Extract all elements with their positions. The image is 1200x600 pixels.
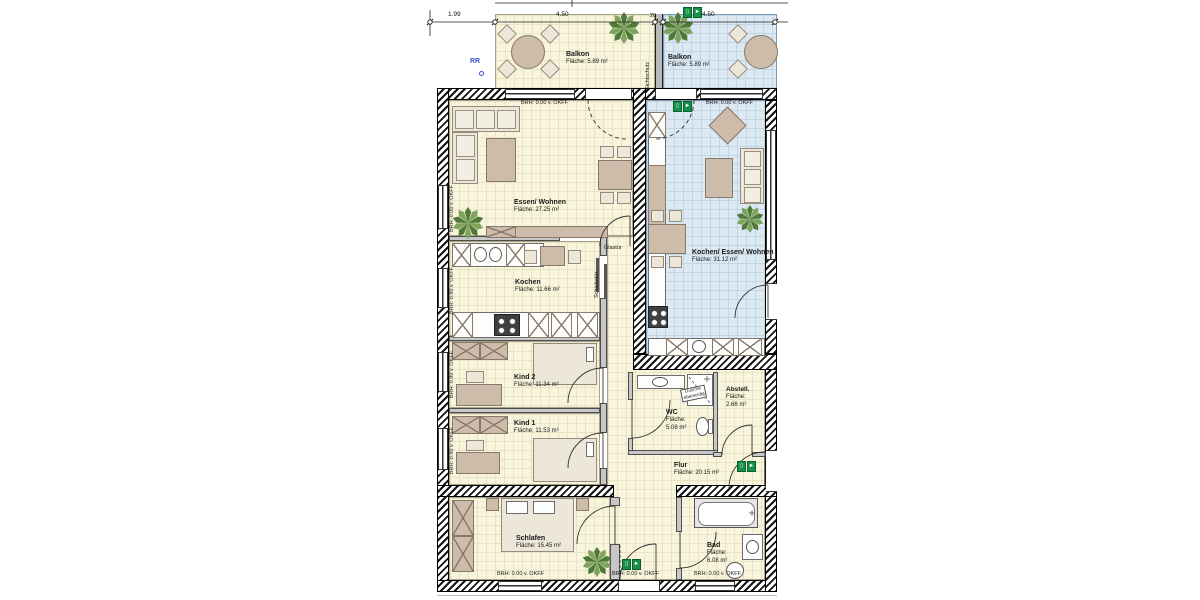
- sofa: [452, 106, 520, 132]
- dining-chair: [669, 210, 682, 222]
- dim-left: 1.99: [448, 11, 461, 19]
- wall-corridor: [600, 298, 607, 368]
- door-gap-right-living: [766, 283, 777, 320]
- balcony-door-gap-right: [655, 89, 697, 99]
- rr-marker: RR: [470, 57, 480, 66]
- kitchen-cabinet: [528, 312, 549, 338]
- balcony-door-gap-left: [585, 89, 632, 99]
- exit-sign-icon: ▯ ►: [622, 559, 641, 570]
- exit-sign-icon: ▯ ►: [683, 7, 702, 18]
- dining-chair: [669, 256, 682, 268]
- wall-corridor: [600, 403, 607, 433]
- sill-label: BRH: 0.00 v. OKFF: [706, 100, 753, 107]
- washbasin: [652, 377, 668, 387]
- bath-sink-basin: [746, 540, 759, 554]
- wardrobe-door: [452, 500, 474, 536]
- plant-icon: [736, 204, 764, 234]
- pillow: [533, 501, 555, 514]
- wall-corridor: [600, 468, 607, 485]
- kitchen-left-label: Kochen Fläche: 11.66 m²: [515, 278, 560, 295]
- stove: [648, 306, 668, 328]
- glass-door-label: Glastür: [604, 245, 622, 252]
- kitchen-cabinet: [506, 243, 525, 267]
- desk: [456, 384, 502, 406]
- bathtub: [694, 498, 758, 528]
- nightstand: [486, 498, 499, 511]
- dining-table: [648, 224, 686, 254]
- wall-band-wc: [633, 354, 777, 370]
- exit-sign-icon: ▯ ►: [737, 461, 756, 472]
- dim-gap: 20: [650, 13, 656, 20]
- wardrobe-door: [452, 342, 480, 360]
- wall-storage-bottom: [752, 452, 766, 457]
- dining-chair: [617, 146, 631, 158]
- wall-bath-left: [676, 497, 682, 532]
- wall-bedroom-right: [610, 497, 620, 506]
- window-living-left: [438, 185, 448, 229]
- dining-chair: [651, 210, 664, 222]
- window-right-living: [766, 130, 776, 260]
- sofa: [452, 132, 478, 184]
- coffee-table: [705, 158, 733, 198]
- kitchen-table: [540, 246, 565, 266]
- nightstand: [576, 498, 589, 511]
- sofa: [740, 148, 764, 204]
- storage-label: Abstell. Fläche: 2.66 m²: [726, 386, 749, 410]
- balcony-right-label: Balkon Fläche: 5.89 m²: [668, 53, 710, 70]
- dining-chair: [600, 192, 614, 204]
- dining-chair: [600, 146, 614, 158]
- kitchen-cabinet: [551, 312, 572, 338]
- window-kid1-left: [438, 428, 448, 470]
- dining-table: [598, 160, 632, 190]
- sliding-door-leaf: [604, 264, 607, 298]
- wc-label: WC Fläche: 5.08 m²: [666, 408, 686, 433]
- kitchen-sink: [692, 340, 706, 353]
- privacy-screen-label: Sichtschutz: [645, 34, 652, 90]
- kitchen-cabinet: [666, 338, 688, 356]
- living-right-label: Kochen/ Essen/ Wohnen Fläche: 31.12 m²: [692, 248, 774, 265]
- desk-chair: [466, 440, 484, 451]
- wall-band-bedroom: [437, 485, 614, 497]
- desk-chair: [466, 371, 484, 383]
- pillow: [586, 347, 594, 362]
- sill-label: BRH: 0.00 v. OKFF: [694, 571, 741, 578]
- wall-left: [437, 88, 449, 592]
- living-left-label: Essen/ Wohnen Fläche: 27.25 m²: [514, 198, 566, 215]
- sill-label: BRH: 0.90 v. OKFF: [449, 346, 456, 398]
- kitchen-cabinet: [648, 112, 666, 138]
- kitchen-cabinet: [577, 312, 598, 338]
- kid1-label: Kind 1 Fläche: 11.53 m²: [514, 419, 559, 436]
- pillow: [586, 442, 594, 457]
- desk: [456, 452, 500, 474]
- dining-chair: [617, 192, 631, 204]
- bedroom-label: Schlafen Fläche: 15.45 m²: [516, 534, 561, 551]
- kitchen-cabinet: [452, 312, 473, 338]
- sill-label: BRH: 0.90 v. OKFF: [449, 262, 456, 314]
- sill-label: BRH: 0.00 v. OKFF: [521, 100, 568, 107]
- window-bedroom-bottom: [498, 581, 542, 591]
- dim-balcony-left: 4.50: [556, 11, 569, 19]
- wardrobe-door: [480, 416, 508, 434]
- wardrobe-door: [452, 536, 474, 572]
- kitchen-cabinet: [738, 338, 762, 356]
- wall-wc-left: [628, 372, 633, 400]
- kitchen-sink: [489, 247, 502, 262]
- window-top-left: [505, 89, 575, 99]
- balcony-left-label: Balkon Fläche: 5.89 m²: [566, 50, 608, 67]
- plant-icon: [582, 546, 612, 578]
- wall-storage-bottom: [713, 452, 722, 457]
- wall-wc-storage: [713, 372, 718, 452]
- toilet-tank: [708, 419, 713, 434]
- entry-door-gap-hall: [766, 450, 777, 492]
- sill-label: BRH: 0.00 v. OKFF: [612, 571, 659, 578]
- sill-label: BRH: 0.90 v. OKFF: [449, 422, 456, 474]
- bath-label: Bad Fläche: 6.08 m²: [707, 541, 727, 566]
- sliding-door-label: Schiebetür: [594, 256, 601, 298]
- stove: [494, 314, 520, 336]
- wall-band-bath: [676, 485, 777, 497]
- plinth-line: [437, 595, 777, 596]
- kid2-label: Kind 2 Fläche: 11.34 m²: [514, 373, 559, 390]
- wall-kid2-kid1: [449, 408, 600, 413]
- window-bath-bottom: [695, 581, 735, 591]
- sideboard-door: [486, 226, 516, 238]
- wall-middle: [633, 88, 646, 354]
- kitchen-chair: [524, 250, 537, 264]
- window-kid2-left: [438, 352, 448, 392]
- kitchen-cabinet: [712, 338, 734, 356]
- entry-door-gap-bottom: [618, 581, 660, 591]
- wall-bath-left: [676, 568, 682, 580]
- sill-label: BRH: 0.00 v. OKFF: [449, 180, 456, 232]
- floor-plan: 1.99 4.50 20 4.50 Balkon Fläche: 5.89 m²…: [0, 0, 1200, 600]
- balcony-table: [511, 35, 545, 69]
- hall-label: Flur Fläche: 20.15 m²: [674, 461, 719, 478]
- exit-sign-icon: ▯ ►: [673, 101, 692, 112]
- window-kitchen-left: [438, 268, 448, 308]
- balcony-table: [744, 35, 778, 69]
- plant-icon: [608, 10, 640, 46]
- window-top-right: [700, 89, 763, 99]
- wall-wc-bottom: [628, 450, 718, 455]
- wardrobe-door: [480, 342, 508, 360]
- rr-marker-circle: [479, 71, 484, 76]
- sill-label: BRH: 0.00 v. OKFF: [497, 571, 544, 578]
- plant-icon: [452, 206, 484, 240]
- coffee-table: [486, 138, 516, 182]
- pillow: [506, 501, 528, 514]
- wardrobe-door: [452, 416, 480, 434]
- kitchen-sink: [474, 247, 487, 262]
- kitchen-chair: [568, 250, 581, 264]
- dim-balcony-right: 4.50: [702, 11, 715, 19]
- dining-chair: [651, 256, 664, 268]
